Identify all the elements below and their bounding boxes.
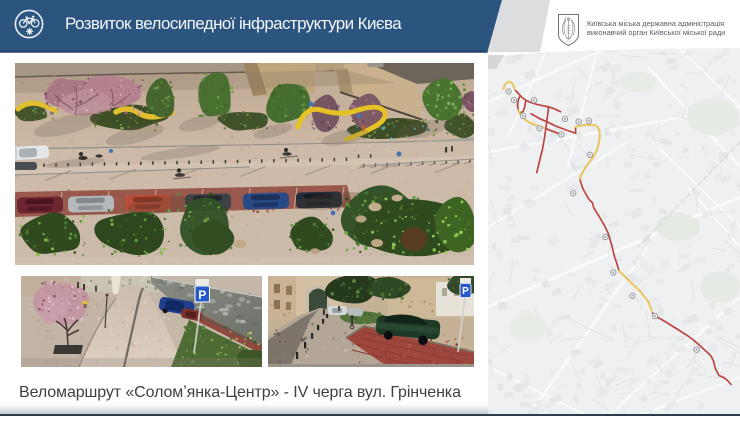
svg-text:P: P [198, 288, 206, 302]
svg-text:P: P [462, 286, 469, 297]
